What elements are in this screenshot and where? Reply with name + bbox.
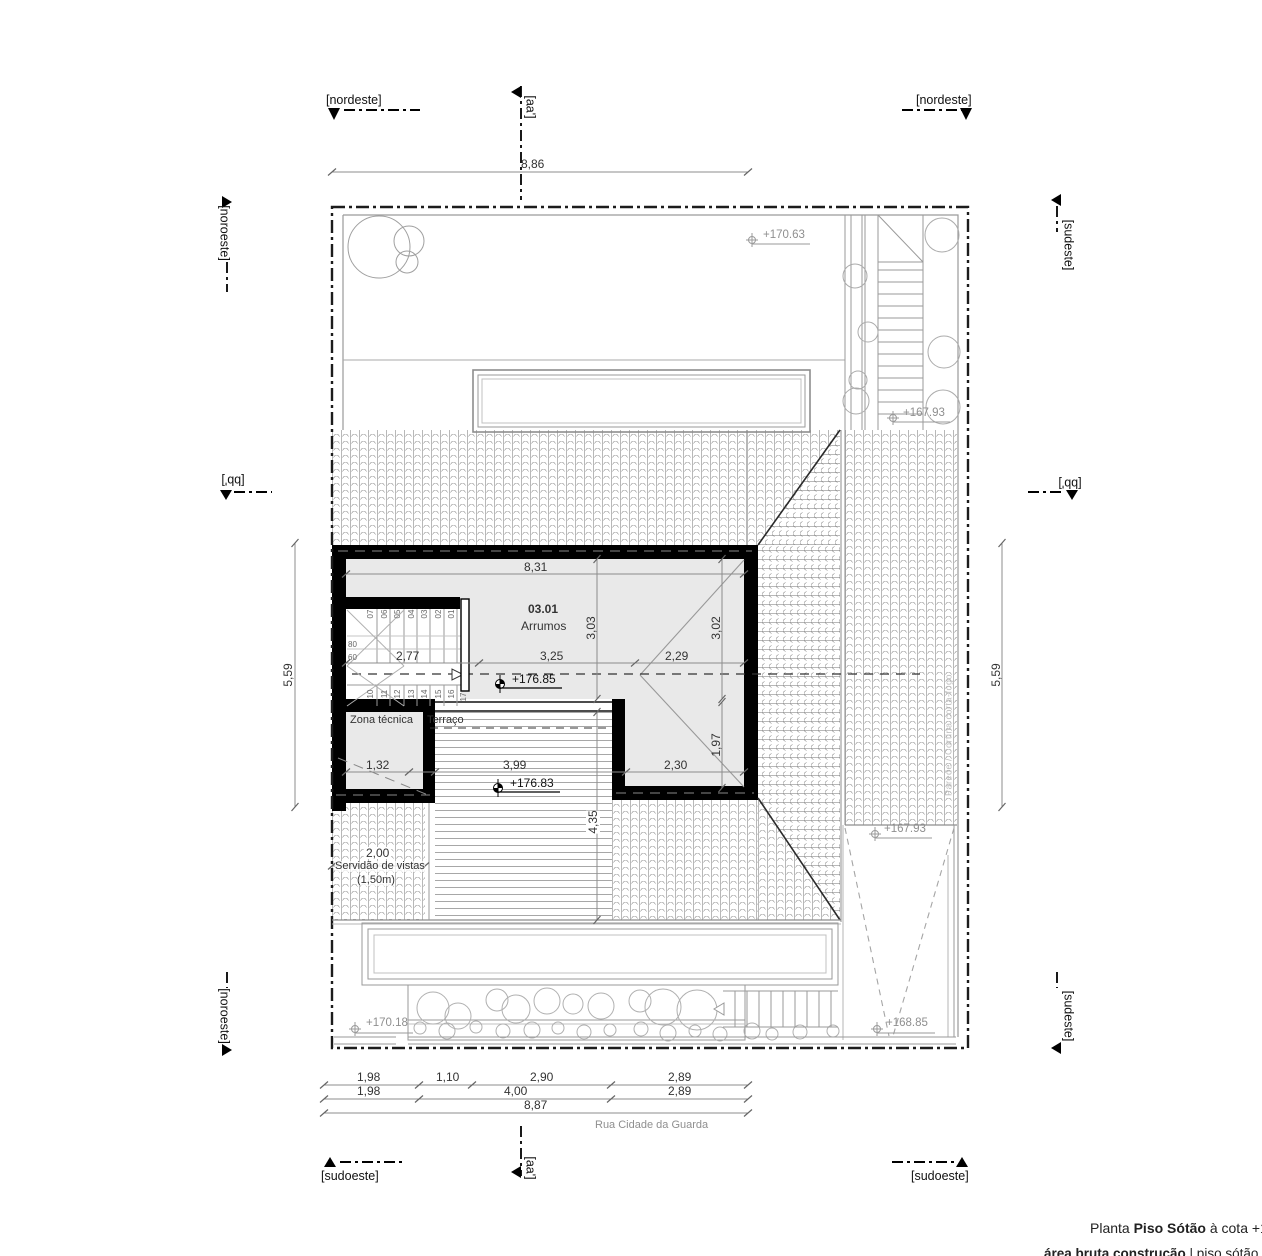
stair-num-bot-1: 11 [381, 690, 389, 698]
marker-noroeste-bottom: [noroeste] [218, 988, 231, 1044]
sheet-title: Planta Piso Sótão à cota +178 [1090, 1220, 1262, 1236]
ramp [843, 825, 954, 1040]
plants-topright [843, 218, 960, 424]
room-name: Arrumos [521, 620, 566, 632]
servidao-label-2: (1,50m) [357, 875, 395, 886]
dim-b2-2: 2,89 [668, 1085, 691, 1097]
stair-num-top-2: 05 [394, 610, 402, 619]
subtitle-suffix: | piso sótão = 03 [1186, 1246, 1262, 1256]
dim-height-left: 3,03 [585, 616, 597, 639]
skylight [473, 370, 810, 432]
floor-plan-sheet: [nordeste] [nordeste] [aa'] [noroeste] [… [0, 0, 1262, 1256]
marker-sudeste-bottom: [sudeste] [1062, 991, 1075, 1042]
stair-handrail [461, 599, 469, 691]
zona-tecnica-label: Zona técnica [350, 715, 413, 726]
dim-b1-0: 1,98 [357, 1071, 380, 1083]
stair-num-top-3: 04 [408, 610, 416, 619]
terraco-label: Terraço [427, 715, 464, 726]
dim-terrace-w: 3,99 [503, 759, 526, 771]
garden-bed [408, 985, 745, 1040]
room-number: 03.01 [528, 603, 558, 615]
stair-num-bot-6: 16 [448, 690, 456, 699]
site-outline [343, 215, 958, 1037]
dim-b1-1: 1,10 [436, 1071, 459, 1083]
exterior-stair-bottom [723, 991, 838, 1027]
marker-bb-left: [bb'] [221, 474, 244, 487]
level-terrace: +176.83 [510, 777, 554, 789]
level-ramp: +168.85 [886, 1018, 928, 1030]
dim-top: 8,86 [521, 158, 544, 170]
stair-num-bot-4: 14 [421, 690, 429, 699]
level-symbols [349, 233, 950, 1036]
stair-num-bot-3: 13 [408, 690, 416, 699]
stair-bottom-arrow [714, 1003, 724, 1015]
dim-ext-height: 1,97 [710, 733, 722, 756]
servidao-label-1: Servidão de vistas [335, 861, 425, 872]
stair-num-top-1: 06 [381, 610, 389, 619]
lower-floor-frame [362, 923, 838, 985]
marker-nordeste-left: [nordeste] [326, 94, 382, 107]
title-bold: Piso Sótão [1134, 1220, 1206, 1236]
stair-num-top-5: 02 [435, 610, 443, 619]
stair-riser-60: 60 [348, 654, 357, 662]
stair-num-top-6: 01 [448, 610, 456, 619]
level-garden-bottom: +170.18 [366, 1018, 408, 1030]
hip-line-bottom [758, 798, 840, 920]
level-street-mid: +167.93 [884, 824, 926, 836]
dim-plan-width: 8,31 [524, 561, 547, 573]
marker-aa-top: [aa'] [524, 95, 537, 118]
level-attic: +176.85 [512, 673, 556, 685]
hip-line-top [758, 430, 840, 545]
dim-b1-3: 2,89 [668, 1071, 691, 1083]
marker-nordeste-right: [nordeste] [916, 94, 972, 107]
exterior-stair-top [845, 215, 923, 430]
marker-aa-bottom: [aa'] [524, 1156, 537, 1179]
firewall-note: Parede / Cortina corta-fogo [945, 674, 954, 796]
street-name: Rua Cidade da Guarda [595, 1120, 708, 1131]
dim-terrace-h: 4,35 [586, 810, 600, 833]
title-suffix: à cota +178 [1206, 1220, 1262, 1236]
marker-sudoeste-left: [sudoeste] [321, 1170, 379, 1183]
property-boundary [332, 207, 968, 1048]
dim-b1-2: 2,90 [530, 1071, 553, 1083]
sheet-subtitle: área bruta construção | piso sótão = 03 [1044, 1246, 1262, 1256]
stair-riser-80: 80 [348, 641, 357, 649]
stair-num-bot-0: 10 [367, 690, 375, 699]
tree-group-topleft [348, 216, 424, 278]
marker-noroeste-top: [noroeste] [218, 205, 231, 261]
marker-bb-right: [bb'] [1058, 477, 1081, 490]
marker-sudeste-top: [sudeste] [1062, 220, 1075, 271]
dim-stair: 2,77 [396, 650, 419, 662]
dim-ext-width: 2,30 [664, 759, 687, 771]
dim-room-mid: 3,25 [540, 650, 563, 662]
stair-num-17: 17 [460, 693, 468, 702]
level-street-top: +167.93 [903, 408, 945, 420]
dim-b2-0: 1,98 [357, 1085, 380, 1097]
dimension-lines [295, 172, 1002, 1113]
level-garden-top: +170.63 [763, 230, 805, 242]
stair-num-bot-5: 15 [435, 690, 443, 699]
dim-b3: 8,87 [524, 1099, 547, 1111]
subtitle-bold: área bruta construção [1044, 1246, 1186, 1256]
dim-side-right: 5,59 [990, 663, 1002, 686]
stair-num-bot-2: 12 [394, 690, 402, 699]
dim-height-right: 3,02 [710, 616, 722, 639]
dim-zona: 1,32 [366, 759, 389, 771]
dim-room-right: 2,29 [665, 650, 688, 662]
linework-layer [0, 0, 1262, 1256]
stair-num-top-0: 07 [367, 610, 375, 619]
title-prefix: Planta [1090, 1220, 1134, 1236]
marker-sudoeste-right: [sudoeste] [911, 1170, 969, 1183]
garden-bushes [414, 988, 839, 1041]
dim-servidao: 2,00 [364, 847, 391, 859]
dim-b2-1: 4,00 [504, 1085, 527, 1097]
dimension-ticks [292, 169, 1006, 1117]
dim-side-left: 5,59 [282, 663, 294, 686]
stair-num-top-4: 03 [421, 610, 429, 619]
